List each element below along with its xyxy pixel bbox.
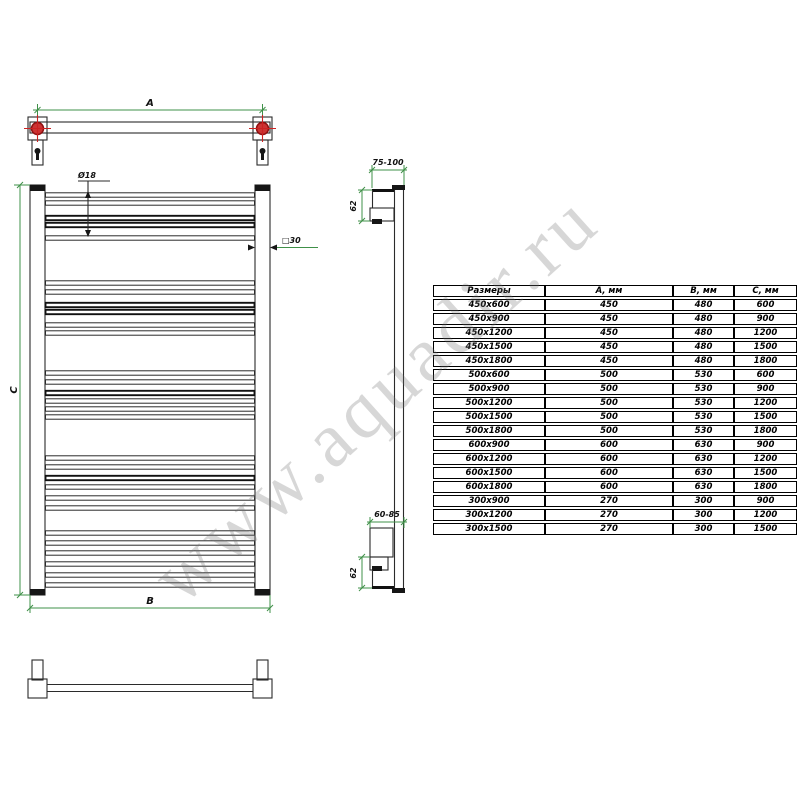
cell-size: 600х1500 [433,467,545,479]
cell-b: 630 [673,453,734,465]
cell-c: 1800 [734,355,797,367]
table-header-row: Размеры А, мм В, мм С, мм [433,285,797,297]
rung [46,223,255,227]
cell-c: 1200 [734,453,797,465]
rung [46,496,255,500]
top-view-left-bracket [24,115,51,165]
cell-c: 900 [734,495,797,507]
rung [46,236,255,240]
cell-a: 270 [545,523,673,535]
cell-a: 450 [545,313,673,325]
cell-a: 600 [545,467,673,479]
cell-c: 600 [734,369,797,381]
post-profile-label: □30 [282,236,301,245]
cell-b: 480 [673,341,734,353]
cell-size: 300х900 [433,495,545,507]
cell-a: 450 [545,327,673,339]
rung [46,281,255,285]
cell-c: 1200 [734,509,797,521]
table-row: 500х1200 500 530 1200 [433,397,797,409]
dim-top-wall-offset: 75-100 [369,158,407,188]
rung [46,541,255,545]
right-post [255,185,270,595]
top-view: A [24,98,276,165]
bottom-bracket-height-label: 62 [349,567,358,579]
rung-diameter-label: Ø18 [77,170,96,180]
cell-b: 530 [673,397,734,409]
rung [46,476,255,480]
cell-c: 1800 [734,481,797,493]
table-row: 450х1500 450 480 1500 [433,341,797,353]
cell-a: 500 [545,369,673,381]
rung [46,391,255,395]
bottom-wall-offset-label: 60-85 [374,510,400,519]
cell-b: 630 [673,439,734,451]
dim-b-label: B [146,596,154,607]
rung [46,303,255,307]
cell-b: 300 [673,495,734,507]
cell-b: 300 [673,523,734,535]
cell-b: 630 [673,481,734,493]
rung [46,201,255,205]
cell-size: 450х1800 [433,355,545,367]
side-bottom-bracket [370,528,394,588]
rung [46,407,255,411]
rung [46,290,255,294]
front-view: C B Ø18 □30 [9,170,318,613]
towel-rail-spec-sheet: A [0,0,800,800]
cell-b: 480 [673,355,734,367]
cell-a: 450 [545,299,673,311]
cell-c: 1200 [734,327,797,339]
rung [46,485,255,489]
cell-c: 1800 [734,425,797,437]
rung [46,415,255,419]
col-header-a: А, мм [545,285,673,297]
cell-size: 450х900 [433,313,545,325]
rung [46,331,255,335]
table-row: 300х1200 270 300 1200 [433,509,797,521]
rung [46,506,255,510]
top-view-tube [30,122,270,133]
dim-a-label: A [145,98,154,109]
cell-b: 480 [673,299,734,311]
cell-c: 900 [734,439,797,451]
cell-size: 500х1500 [433,411,545,423]
cell-b: 480 [673,327,734,339]
dim-c-label: C [9,386,20,394]
cell-size: 300х1500 [433,523,545,535]
cell-a: 500 [545,383,673,395]
rung [46,573,255,577]
cell-size: 600х900 [433,439,545,451]
cell-b: 480 [673,313,734,325]
table-row: 450х900 450 480 900 [433,313,797,325]
table-row: 600х900 600 630 900 [433,439,797,451]
table-row: 500х1800 500 530 1800 [433,425,797,437]
cell-c: 900 [734,313,797,325]
dim-bottom-bracket-height: 62 [349,554,372,591]
table-row: 600х1500 600 630 1500 [433,467,797,479]
cell-b: 530 [673,369,734,381]
cell-b: 530 [673,425,734,437]
rung [46,371,255,375]
table-row: 450х600 450 480 600 [433,299,797,311]
cell-c: 900 [734,383,797,395]
cell-c: 600 [734,299,797,311]
rung [46,323,255,327]
table-row: 500х600 500 530 600 [433,369,797,381]
table-row: 450х1800 450 480 1800 [433,355,797,367]
cell-size: 500х1800 [433,425,545,437]
cell-size: 450х600 [433,299,545,311]
cell-size: 600х1800 [433,481,545,493]
cell-a: 600 [545,439,673,451]
cell-b: 630 [673,467,734,479]
dim-top-bracket-height: 62 [349,187,372,224]
cell-b: 530 [673,411,734,423]
cell-a: 600 [545,453,673,465]
cell-c: 1500 [734,411,797,423]
cell-c: 1200 [734,397,797,409]
cell-size: 600х1200 [433,453,545,465]
dim-b: B [27,595,273,613]
rung [46,531,255,535]
cell-a: 500 [545,425,673,437]
post-profile-callout: □30 [248,236,318,251]
rung [46,456,255,460]
dim-a: A [33,98,267,117]
table-body: 450х600 450 480 600 450х900 450 480 900 … [433,299,797,535]
col-header-c: С, мм [734,285,797,297]
col-header-size: Размеры [433,285,545,297]
cell-size: 300х1200 [433,509,545,521]
top-view-right-bracket [249,115,276,165]
cell-size: 500х600 [433,369,545,381]
rung [46,193,255,197]
table-row: 300х900 270 300 900 [433,495,797,507]
cell-a: 270 [545,495,673,507]
table-row: 450х1200 450 480 1200 [433,327,797,339]
cell-c: 1500 [734,341,797,353]
rung [46,465,255,469]
rung [46,583,255,587]
cell-c: 1500 [734,523,797,535]
table-row: 500х1500 500 530 1500 [433,411,797,423]
col-header-b: В, мм [673,285,734,297]
cell-size: 450х1200 [433,327,545,339]
table-row: 600х1200 600 630 1200 [433,453,797,465]
table-row: 300х1500 270 300 1500 [433,523,797,535]
cell-a: 270 [545,509,673,521]
dim-bottom-wall-offset: 60-85 [367,510,407,528]
cell-a: 500 [545,397,673,409]
dimensions-table: Размеры А, мм В, мм С, мм 450х600 450 48… [433,283,797,537]
rung [46,551,255,555]
top-wall-offset-label: 75-100 [372,158,404,167]
cell-size: 500х1200 [433,397,545,409]
cell-a: 450 [545,355,673,367]
side-top-bracket [370,190,394,224]
table-row: 600х1800 600 630 1800 [433,481,797,493]
cell-c: 1500 [734,467,797,479]
rung [46,562,255,566]
front-rungs [46,193,255,587]
rung [46,399,255,403]
rung [46,310,255,314]
rung [46,216,255,220]
side-view: 75-100 62 [349,158,407,593]
table-row: 500х900 500 530 900 [433,383,797,395]
dim-c: C [9,182,30,598]
cell-a: 600 [545,481,673,493]
bottom-view [28,660,272,698]
top-bracket-height-label: 62 [349,200,358,212]
cell-b: 300 [673,509,734,521]
cell-size: 500х900 [433,383,545,395]
cell-b: 530 [673,383,734,395]
cell-size: 450х1500 [433,341,545,353]
rung [46,380,255,384]
cell-a: 500 [545,411,673,423]
cell-a: 450 [545,341,673,353]
left-post [30,185,45,595]
